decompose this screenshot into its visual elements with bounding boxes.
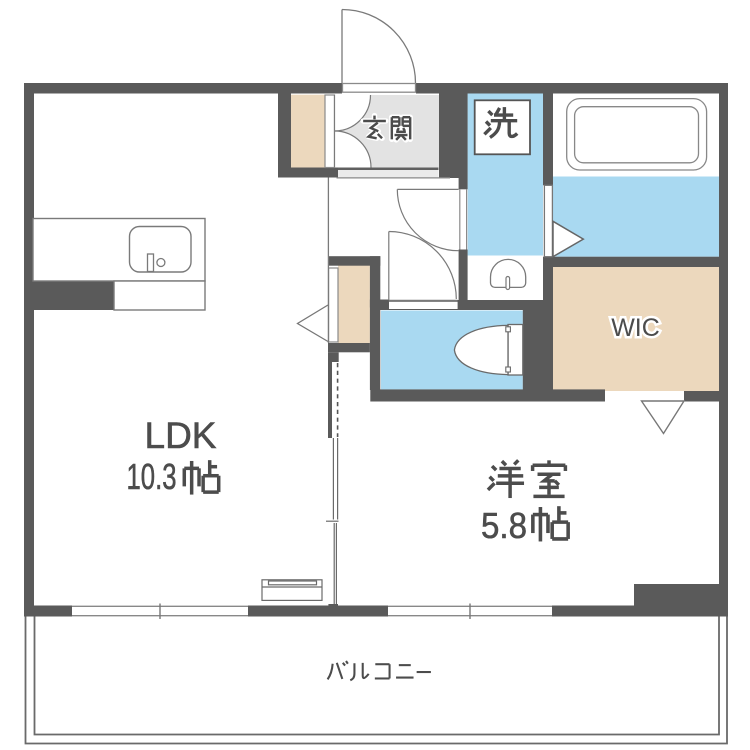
svg-text:10.3: 10.3: [127, 456, 177, 497]
svg-text:LDK: LDK: [145, 415, 217, 456]
svg-text:WIC: WIC: [611, 314, 660, 342]
svg-text:5.8: 5.8: [481, 505, 527, 546]
